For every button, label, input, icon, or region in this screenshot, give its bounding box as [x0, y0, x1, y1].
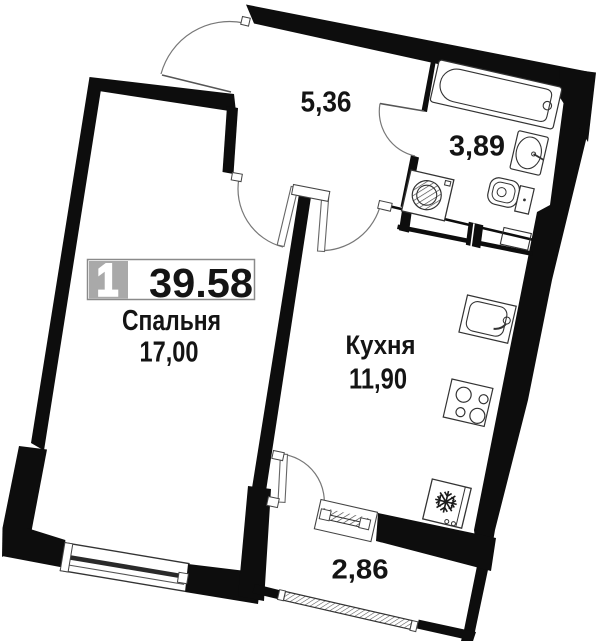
svg-text:39.58: 39.58 [149, 260, 253, 306]
svg-text:17,00: 17,00 [140, 337, 199, 369]
svg-text:1: 1 [97, 255, 119, 305]
svg-text:Кухня: Кухня [346, 330, 416, 360]
svg-text:Спальня: Спальня [122, 305, 221, 337]
svg-text:3,89: 3,89 [449, 131, 505, 163]
svg-text:11,90: 11,90 [349, 364, 407, 396]
svg-text:2,86: 2,86 [332, 554, 389, 585]
svg-text:5,36: 5,36 [301, 87, 352, 119]
